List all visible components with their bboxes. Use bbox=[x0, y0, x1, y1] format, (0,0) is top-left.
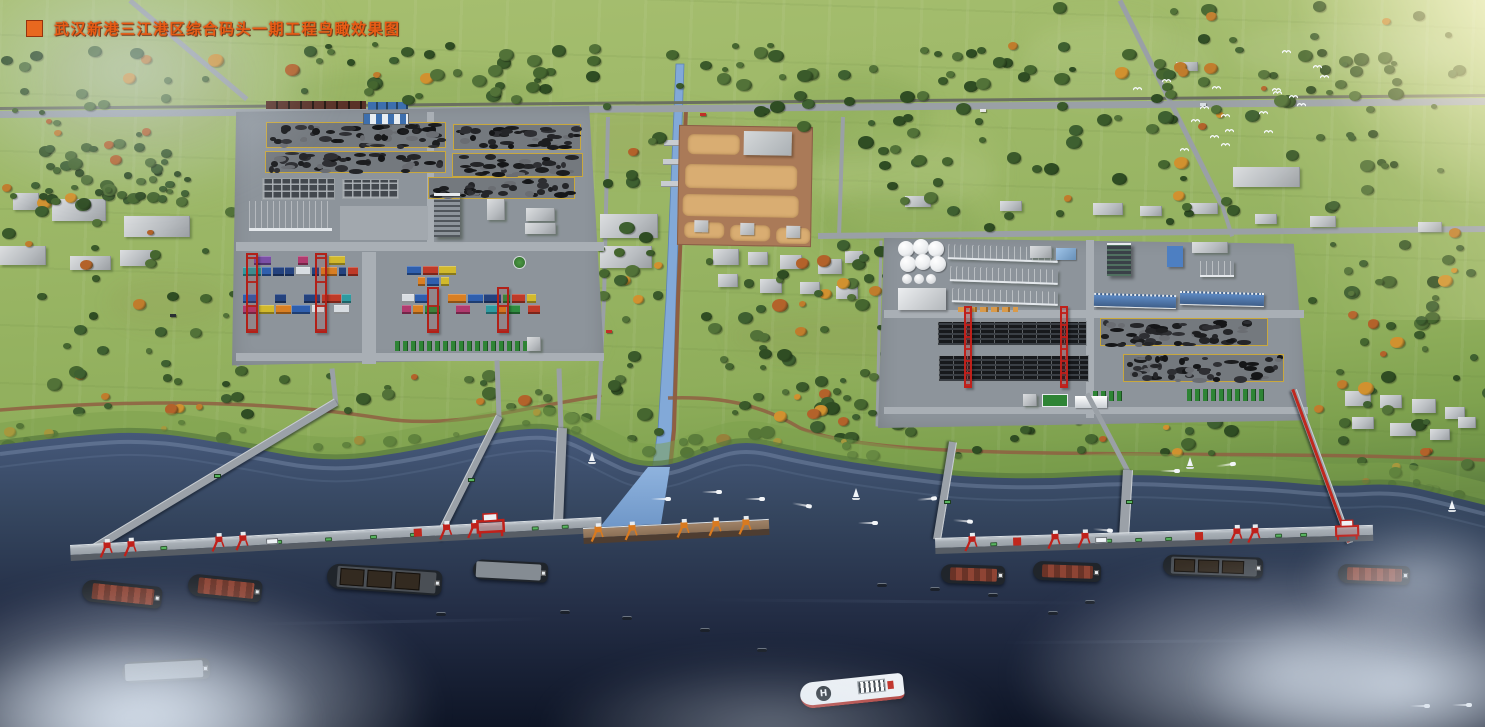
boat bbox=[967, 519, 973, 523]
port-aerial-rendering: H 武汉新港三江港区综合码头一期工程鸟瞰效果图 bbox=[0, 0, 1485, 727]
vehicle bbox=[944, 500, 951, 504]
small-boat bbox=[622, 616, 632, 620]
sts-gantry-crane-icon bbox=[474, 511, 509, 539]
portal-crane-icon bbox=[210, 532, 227, 553]
boat-wake bbox=[1160, 469, 1180, 473]
bird-icon bbox=[1225, 118, 1234, 124]
boat bbox=[1230, 462, 1236, 466]
bird-icon bbox=[1259, 100, 1268, 106]
portal-crane-icon bbox=[122, 536, 139, 557]
vehicle bbox=[214, 474, 221, 478]
crane-svg bbox=[623, 520, 640, 541]
bird-icon bbox=[1191, 108, 1200, 114]
hull bbox=[1186, 467, 1194, 469]
boat bbox=[1107, 528, 1113, 532]
portal-crane-icon bbox=[1246, 523, 1263, 543]
deck-equipment bbox=[1013, 537, 1021, 545]
hull bbox=[588, 462, 596, 464]
bird-icon bbox=[1162, 68, 1171, 74]
bird-icon bbox=[1221, 103, 1230, 109]
boat-wake bbox=[651, 497, 671, 501]
crane-svg bbox=[1076, 528, 1093, 548]
sail bbox=[1187, 457, 1193, 466]
bird-svg bbox=[1225, 127, 1234, 133]
bird-svg bbox=[1221, 141, 1230, 147]
bird-icon bbox=[1200, 95, 1209, 101]
bird-icon bbox=[1180, 137, 1189, 143]
crane-svg bbox=[210, 532, 227, 553]
small-boat bbox=[988, 593, 998, 597]
portal-crane-icon bbox=[623, 520, 640, 541]
bird-icon bbox=[1289, 84, 1298, 90]
boat bbox=[716, 490, 722, 494]
deck-equipment bbox=[1195, 532, 1203, 540]
portal-crane-icon bbox=[234, 530, 251, 551]
barge-cargo bbox=[949, 567, 997, 582]
bird-icon bbox=[1297, 92, 1306, 98]
bird-svg bbox=[1200, 104, 1209, 110]
bird-svg bbox=[1180, 146, 1189, 152]
portal-crane-icon bbox=[437, 520, 454, 541]
boat-wake bbox=[745, 497, 765, 501]
deck-equipment bbox=[160, 546, 167, 550]
small-boat bbox=[700, 628, 710, 632]
small-boat bbox=[560, 610, 570, 614]
boat bbox=[759, 497, 765, 501]
boat-wake bbox=[702, 490, 722, 494]
bird-svg bbox=[1191, 117, 1200, 123]
bird-svg bbox=[1221, 112, 1230, 118]
crane-svg bbox=[437, 520, 454, 541]
deck-equipment bbox=[562, 525, 569, 529]
bird-icon bbox=[1210, 124, 1219, 130]
bird-icon bbox=[1264, 119, 1273, 125]
crane-svg bbox=[675, 518, 692, 539]
hull bbox=[852, 498, 860, 500]
sts-svg bbox=[474, 511, 509, 539]
crane-svg bbox=[707, 516, 724, 537]
vehicle bbox=[1126, 500, 1133, 504]
bird-icon bbox=[1282, 39, 1291, 45]
sail bbox=[853, 488, 859, 497]
crane-svg bbox=[122, 536, 139, 557]
bird-svg bbox=[1264, 128, 1273, 134]
fog bbox=[0, 635, 320, 727]
small-boat bbox=[757, 648, 767, 652]
boat bbox=[872, 521, 878, 525]
deck-equipment bbox=[1165, 537, 1172, 541]
small-boat bbox=[877, 583, 887, 587]
sailboat bbox=[588, 452, 596, 464]
bird-icon bbox=[1273, 80, 1282, 86]
bird-svg bbox=[1313, 63, 1322, 69]
barge bbox=[473, 559, 549, 583]
boat bbox=[931, 496, 937, 500]
bird-svg bbox=[1259, 109, 1268, 115]
bird-svg bbox=[1210, 133, 1219, 139]
deck-equipment bbox=[1275, 534, 1282, 538]
crane-svg bbox=[234, 530, 251, 551]
title-text: 武汉新港三江港区综合码头一期工程鸟瞰效果图 bbox=[54, 18, 401, 39]
portal-crane-icon bbox=[589, 522, 606, 543]
bird-svg bbox=[1282, 48, 1291, 54]
bird-icon bbox=[1313, 54, 1322, 60]
sail bbox=[1449, 500, 1455, 509]
drawing-title: 武汉新港三江港区综合码头一期工程鸟瞰效果图 bbox=[26, 18, 401, 39]
boat-wake bbox=[858, 521, 878, 525]
boat bbox=[665, 497, 671, 501]
vehicle bbox=[468, 478, 475, 482]
sailboat bbox=[1448, 500, 1456, 512]
deck-equipment bbox=[990, 542, 997, 546]
sailboat bbox=[1186, 457, 1194, 469]
crane-svg bbox=[1046, 529, 1063, 549]
bird-svg bbox=[1289, 93, 1298, 99]
deck-equipment bbox=[325, 537, 332, 541]
deck-equipment bbox=[370, 535, 377, 539]
sail bbox=[589, 452, 595, 461]
deck-equipment bbox=[1135, 538, 1142, 542]
wheelhouse bbox=[998, 573, 1003, 578]
deck-truck bbox=[1095, 537, 1107, 543]
crane-svg bbox=[589, 522, 606, 543]
portal-crane-icon bbox=[963, 532, 980, 552]
boat bbox=[806, 504, 813, 508]
title-bullet-marker bbox=[26, 20, 43, 37]
bird-icon bbox=[1212, 75, 1221, 81]
barge-deck bbox=[476, 561, 542, 580]
small-boat bbox=[930, 587, 940, 591]
sailboat bbox=[852, 488, 860, 500]
bird-svg bbox=[1212, 84, 1221, 90]
portal-crane-icon bbox=[1228, 524, 1245, 544]
bird-svg bbox=[1297, 101, 1306, 107]
fog bbox=[540, 655, 1000, 727]
crane-svg bbox=[98, 538, 115, 559]
bird-icon bbox=[1133, 76, 1142, 82]
wheelhouse bbox=[541, 570, 546, 575]
portal-crane-icon bbox=[1046, 529, 1063, 549]
crane-svg bbox=[963, 532, 980, 552]
portal-crane-icon bbox=[675, 518, 692, 539]
crane-svg bbox=[737, 515, 754, 536]
fog bbox=[1300, 515, 1485, 645]
boat bbox=[1174, 469, 1180, 473]
crane-svg bbox=[1228, 524, 1245, 544]
deck-equipment bbox=[414, 528, 422, 536]
deck-equipment bbox=[532, 526, 539, 530]
bird-svg bbox=[1320, 73, 1329, 79]
portal-crane-icon bbox=[98, 538, 115, 559]
barge bbox=[941, 564, 1006, 585]
bird-svg bbox=[1162, 77, 1171, 83]
bird-svg bbox=[1273, 89, 1282, 95]
deck-truck bbox=[266, 538, 278, 545]
portal-crane-icon bbox=[707, 516, 724, 537]
portal-crane-icon bbox=[737, 515, 754, 536]
bird-svg bbox=[1133, 85, 1142, 91]
crane-svg bbox=[1246, 523, 1263, 543]
portal-crane-icon bbox=[1076, 528, 1093, 548]
hull bbox=[1448, 510, 1456, 512]
